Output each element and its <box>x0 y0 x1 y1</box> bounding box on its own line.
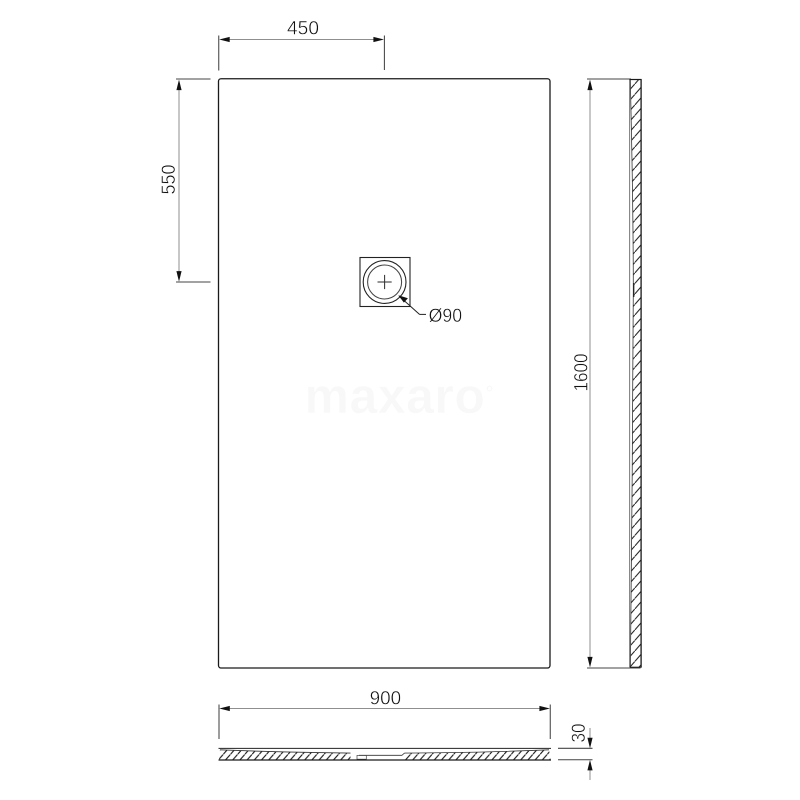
svg-text:900: 900 <box>370 688 402 710</box>
svg-text:550: 550 <box>158 164 180 194</box>
svg-text:450: 450 <box>287 18 319 40</box>
svg-text:Ø90: Ø90 <box>429 305 463 327</box>
svg-text:maxaro: maxaro <box>305 368 486 424</box>
svg-text:1600: 1600 <box>570 353 592 391</box>
svg-text:30: 30 <box>568 723 590 742</box>
